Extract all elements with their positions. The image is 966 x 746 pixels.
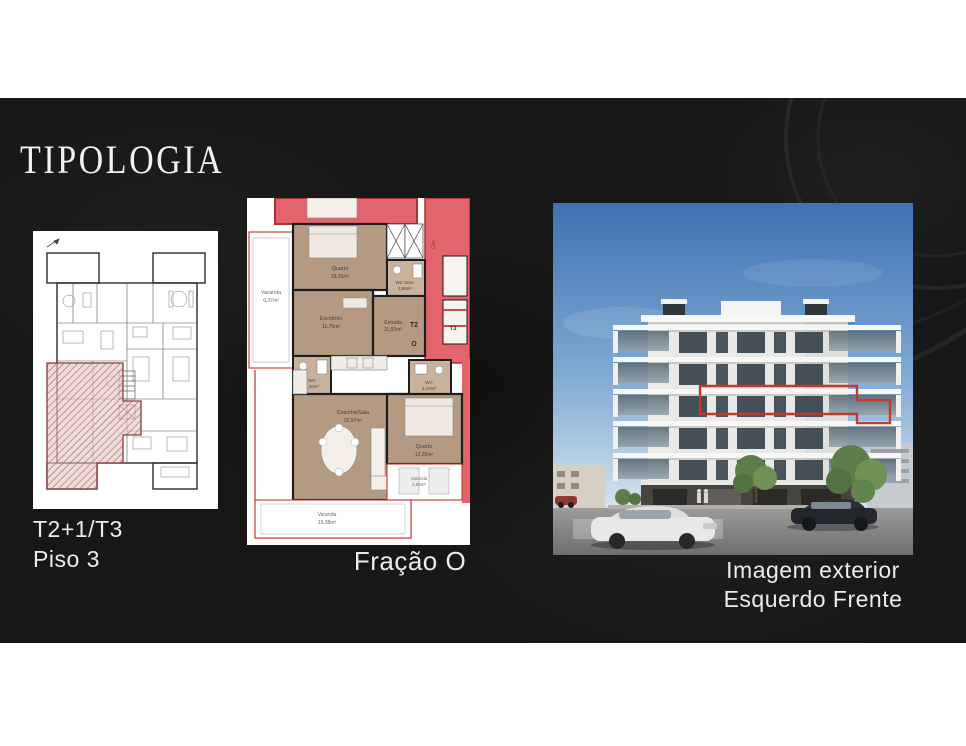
room-label: Varanda [411, 476, 428, 481]
room-label: Entrada [384, 320, 402, 326]
room-area: 3,44m² [422, 386, 437, 391]
exterior-caption-line1: Imagem exterior [640, 556, 966, 585]
room-varanda-bottom: Varanda 19,38m² [255, 500, 411, 538]
exterior-caption: Imagem exterior Esquerdo Frente [640, 556, 966, 614]
room-area: 4,95m² [412, 482, 427, 487]
fraction-plan: Varanda 6,37m² Quarto 19,35m² [247, 198, 470, 545]
slide-dark-band: TIPOLOGIA [0, 98, 966, 643]
overview-caption-line2: Piso 3 [33, 544, 123, 574]
room-wc-social: WC 3,44m² [409, 360, 451, 394]
room-area: 11,76m² [322, 324, 340, 330]
fraction-plan-drawing: Varanda 6,37m² Quarto 19,35m² [247, 198, 470, 545]
exterior-render [553, 203, 913, 555]
room-varanda-right: Varanda 4,95m² [387, 464, 462, 500]
room-area: 19,38m² [318, 520, 337, 526]
room-area: 19,35m² [331, 274, 350, 280]
room-escritorio: Escritório 11,76m² [293, 290, 373, 356]
floor-overview-plan [33, 231, 218, 509]
wardrobes [387, 224, 423, 258]
room-quarto-top: Quarto 19,35m² [293, 224, 387, 290]
room-wc-serv: WC Serv. 3,96m² [387, 260, 425, 296]
floor-overview-drawing [33, 231, 218, 509]
overview-caption-line1: T2+1/T3 [33, 514, 123, 544]
unit-label-t3: T3 [449, 326, 457, 332]
slide-page: TIPOLOGIA [0, 0, 966, 746]
room-area: 22,97m² [344, 418, 363, 424]
room-quarto-right: Quarto 12,20m² [387, 394, 462, 464]
room-label: WC Serv. [396, 280, 415, 285]
circulation-label: Circ. [431, 239, 437, 249]
overview-caption: T2+1/T3 Piso 3 [33, 514, 123, 574]
room-label: Quarto [332, 266, 349, 272]
room-label: WC [308, 378, 316, 383]
room-area: 12,20m² [415, 452, 434, 458]
room-area: 6,37m² [263, 298, 279, 304]
room-label: Escritório [320, 316, 343, 322]
exterior-caption-line2: Esquerdo Frente [640, 585, 966, 614]
unit-label-o: O [411, 341, 417, 348]
page-title: TIPOLOGIA [20, 136, 224, 183]
room-varanda-left: Varanda 6,37m² [249, 232, 293, 368]
unit-label-t2: T2 [410, 322, 418, 329]
fraction-caption: Fração O [310, 546, 510, 577]
room-area: 11,50m² [384, 327, 402, 333]
room-label: Cozinha/Sala [337, 410, 371, 416]
room-label: Varanda [261, 290, 282, 296]
room-label: Varanda [318, 512, 337, 518]
exterior-render-drawing [553, 203, 913, 555]
room-label: Quarto [416, 444, 433, 450]
room-entrada: Entrada 11,50m² T2 O [373, 296, 425, 356]
room-area: 3,96m² [398, 286, 413, 291]
room-label: WC [425, 380, 433, 385]
